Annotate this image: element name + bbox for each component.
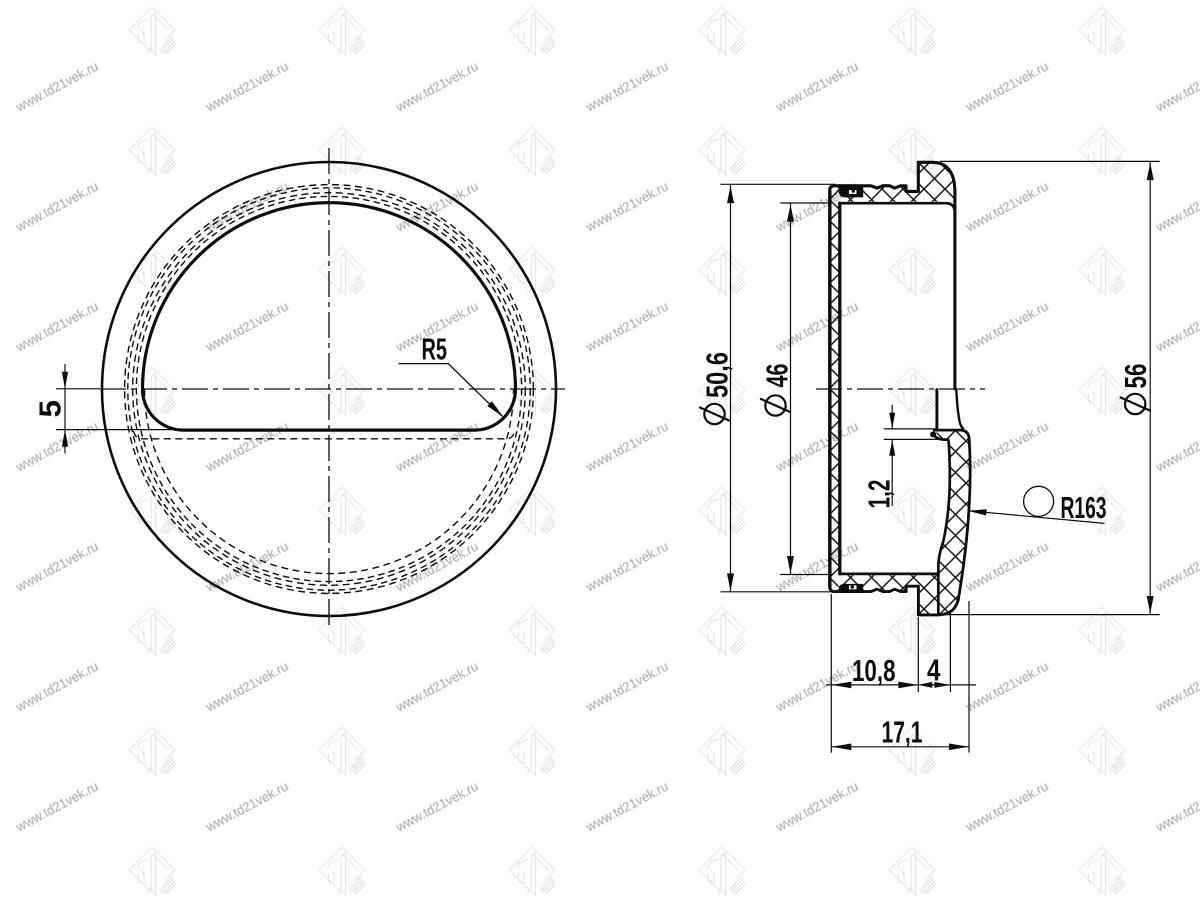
svg-text:R5: R5 [422, 332, 448, 367]
svg-text:46: 46 [760, 364, 795, 388]
svg-text:4: 4 [927, 653, 941, 688]
svg-text:17,1: 17,1 [882, 715, 923, 750]
svg-text:5: 5 [33, 400, 68, 418]
svg-text:R163: R163 [1061, 490, 1107, 525]
svg-text:50,6: 50,6 [700, 352, 735, 398]
svg-text:1,2: 1,2 [862, 480, 897, 509]
svg-text:56: 56 [1118, 364, 1153, 389]
svg-text:10,8: 10,8 [852, 653, 896, 688]
